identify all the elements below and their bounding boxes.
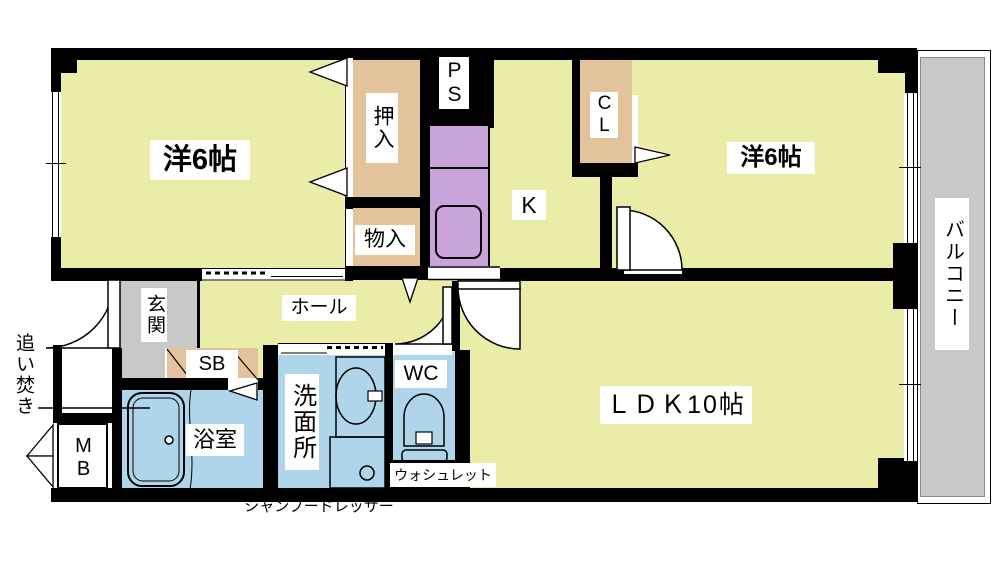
label-bedroom2: 洋6帖: [727, 142, 815, 174]
room-genkan-lower: [120, 348, 165, 381]
wall-left-lower: [53, 345, 62, 415]
label-washlet: ウォシュレット: [390, 463, 496, 487]
wall-door-jamb: [452, 281, 460, 351]
label-ps: PS: [439, 57, 469, 109]
label-bath: 浴室: [186, 424, 244, 456]
label-sb: SB: [186, 350, 238, 378]
closet-door-cl: [632, 95, 638, 163]
kitchen-unit: [428, 124, 490, 268]
doorway-wc: [393, 343, 452, 355]
closet-door-oshiire: [346, 58, 353, 197]
window-bedroom2: [904, 93, 917, 243]
floor-plan: 洋6帖 洋6帖 K ＬＤＫ10帖 ホール 玄関 浴室 洗面所 WC バルコニー …: [0, 0, 1000, 562]
wall-below-monoire: [345, 266, 430, 280]
doorway-bath: [228, 378, 258, 390]
window-ldk: [904, 309, 917, 461]
mb-door-triangle-top: [27, 425, 53, 456]
wall-genkan-hall-divider: [197, 281, 200, 348]
label-kitchen: K: [512, 190, 546, 220]
label-balcony: バルコニー: [935, 198, 969, 350]
label-wc: WC: [395, 360, 447, 388]
wall-bath-washroom: [263, 345, 278, 490]
label-oidaki: 追い焚き: [8, 326, 38, 424]
wall-cl-bottom: [572, 163, 638, 177]
wall-genkan-left-lower: [112, 348, 122, 490]
doorway-kitchen: [428, 266, 500, 280]
wall-k-ldk: [500, 268, 612, 281]
label-mb: MB: [66, 431, 100, 485]
label-genkan: 玄関: [141, 288, 167, 342]
label-ldk: ＬＤＫ10帖: [600, 386, 752, 424]
label-hall: ホール: [282, 295, 356, 321]
wall-cl-left: [572, 48, 580, 163]
label-shampoo-dresser: シャンプードレッサー: [240, 495, 398, 519]
entrance-door-leaf: [108, 280, 120, 348]
label-monoire: 物入: [355, 225, 415, 255]
mb-door-triangle-bottom: [27, 456, 53, 487]
wall-closet-divider: [345, 197, 420, 208]
wall-mb-top: [53, 413, 112, 423]
wall-bed2-pier: [600, 177, 612, 281]
wall-bath-top-left: [113, 378, 228, 390]
label-oshiire: 押入: [366, 93, 398, 163]
label-cl: CL: [590, 92, 618, 138]
label-washroom: 洗面所: [285, 374, 319, 470]
doorway-bedroom2: [624, 268, 682, 274]
sliding-door-washroom: [278, 343, 385, 355]
wall-bottom: [51, 488, 917, 502]
sliding-door-bedroom1-hall: [202, 268, 345, 281]
closet-door-monoire: [346, 209, 353, 266]
entrance-door-arc: [46, 280, 114, 348]
window-left: [50, 92, 61, 237]
label-bedroom1: 洋6帖: [150, 140, 250, 180]
wall-genkan-top: [51, 268, 202, 281]
